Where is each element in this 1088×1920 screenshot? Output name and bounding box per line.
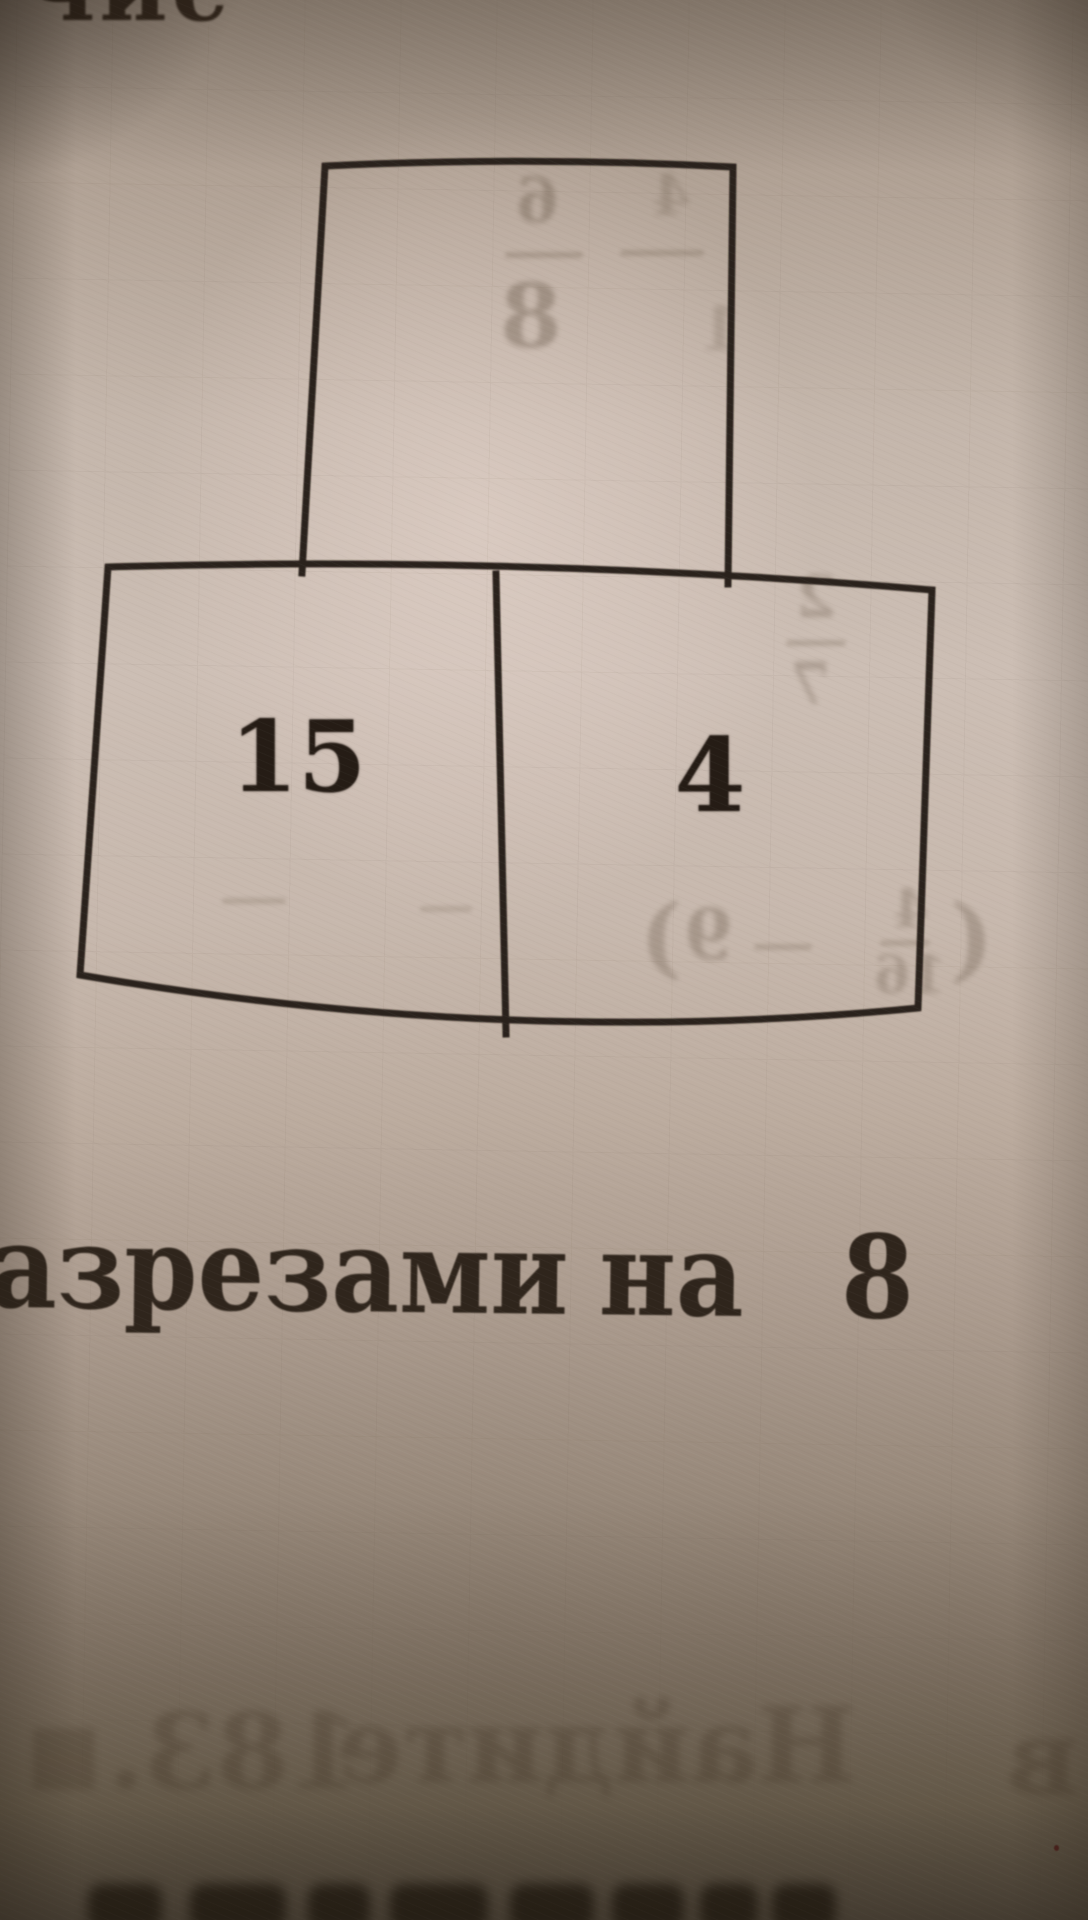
left-box-number: 15 [178, 700, 418, 815]
caption-line: азрезами на 8 [0, 1198, 1088, 1391]
top-clipped-word: чис [28, 0, 232, 42]
box-diagram [0, 0, 1088, 1920]
boxes-divider-line [496, 574, 506, 1034]
right-box-number: 4 [592, 716, 828, 836]
dust-speck [1054, 1845, 1059, 1851]
top-box-outline [302, 161, 733, 584]
textbook-page-photo: 684127)9416(■183.Найдитев чис 15 4 азрез… [0, 0, 1088, 1920]
caption-word-1: азрезами [0, 1198, 569, 1341]
caption-word-3: 8 [840, 1208, 915, 1345]
caption-word-2: на [598, 1205, 745, 1343]
